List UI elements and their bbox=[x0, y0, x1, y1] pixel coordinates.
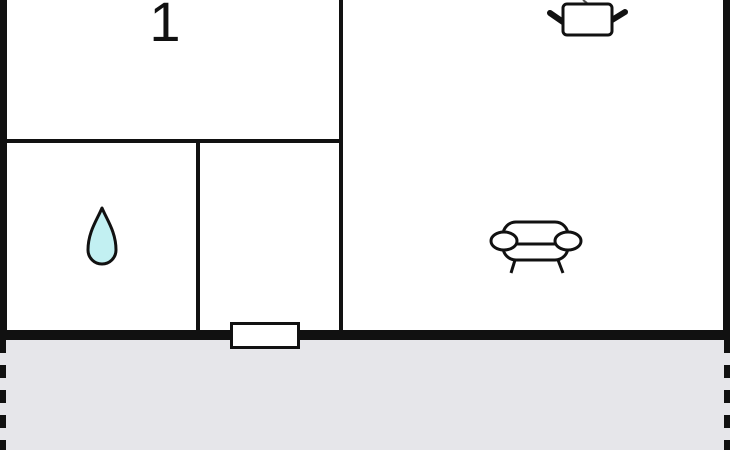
water-drop-shape bbox=[88, 208, 116, 264]
outer-wall-left bbox=[0, 0, 7, 340]
water-drop-icon bbox=[84, 205, 120, 271]
interior-wall-horizontal bbox=[0, 139, 343, 143]
outer-wall-bottom bbox=[0, 330, 730, 340]
interior-wall-vertical-inner bbox=[196, 139, 200, 334]
sofa-armrest-left bbox=[491, 232, 517, 250]
terrace-dashed-border-right bbox=[724, 340, 730, 450]
pot-body bbox=[563, 4, 612, 35]
terrace-area bbox=[0, 340, 730, 450]
sofa-leg-left bbox=[511, 260, 515, 273]
cooking-pot-icon bbox=[545, 0, 630, 42]
terrace-dashed-border-left bbox=[0, 340, 6, 450]
room-1-label: 1 bbox=[125, 0, 205, 53]
sofa-icon bbox=[486, 216, 590, 278]
pot-handle-left bbox=[550, 13, 563, 22]
pot-handle-right bbox=[612, 12, 625, 20]
entrance-door bbox=[230, 322, 300, 349]
floor-plan-canvas: 1 bbox=[0, 0, 730, 450]
sofa-armrest-right bbox=[555, 232, 581, 250]
outer-wall-right bbox=[723, 0, 730, 340]
sofa-leg-right bbox=[558, 260, 563, 273]
interior-wall-vertical-main bbox=[339, 0, 343, 334]
